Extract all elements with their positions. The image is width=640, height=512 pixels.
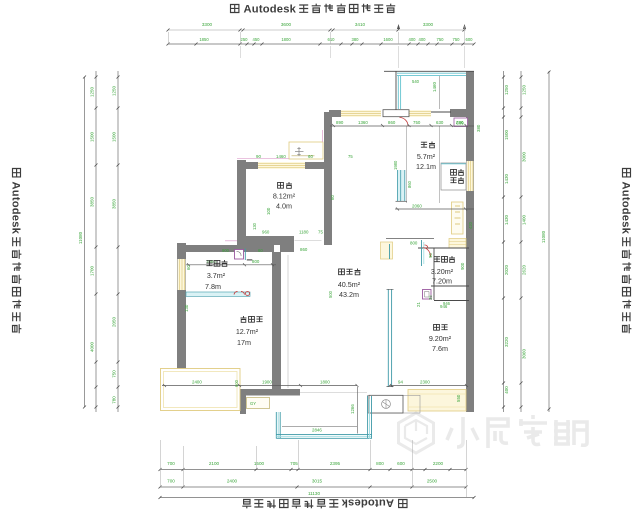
svg-text:860: 860	[407, 180, 412, 188]
svg-text:2500: 2500	[427, 479, 438, 484]
svg-text:780: 780	[112, 396, 117, 404]
svg-text:1266: 1266	[350, 404, 355, 414]
svg-text:94: 94	[398, 380, 403, 385]
svg-text:600: 600	[397, 461, 405, 466]
svg-text:1250: 1250	[112, 85, 117, 96]
svg-text:GY: GY	[250, 401, 256, 406]
svg-text:8.12m²: 8.12m²	[273, 192, 296, 201]
svg-text:3000: 3000	[522, 151, 527, 162]
svg-text:100: 100	[266, 207, 271, 215]
svg-text:860: 860	[300, 247, 308, 252]
svg-text:2300: 2300	[420, 380, 430, 385]
svg-text:380: 380	[476, 124, 481, 132]
svg-text:420: 420	[468, 221, 473, 229]
svg-text:2100: 2100	[209, 461, 220, 466]
svg-text:60: 60	[308, 154, 313, 159]
svg-text:1250: 1250	[522, 84, 527, 95]
svg-text:11080: 11080	[78, 231, 83, 244]
svg-text:1700: 1700	[90, 265, 95, 276]
svg-text:4.0m: 4.0m	[276, 202, 292, 211]
svg-text:3850: 3850	[90, 196, 95, 207]
svg-text:40.5m²: 40.5m²	[338, 280, 361, 289]
svg-text:9.20m²: 9.20m²	[429, 334, 452, 343]
svg-text:1460: 1460	[432, 81, 437, 92]
svg-text:75: 75	[348, 154, 353, 159]
svg-text:2200: 2200	[433, 461, 444, 466]
svg-text:1600: 1600	[383, 37, 393, 42]
svg-text:3410: 3410	[355, 22, 366, 27]
svg-text:1900: 1900	[262, 380, 272, 385]
svg-text:380: 380	[352, 37, 360, 42]
svg-text:1500: 1500	[112, 131, 117, 142]
svg-text:750: 750	[112, 370, 117, 378]
svg-text:3.7m²: 3.7m²	[207, 271, 226, 280]
svg-text:3015: 3015	[312, 479, 323, 484]
svg-text:17m: 17m	[237, 338, 251, 347]
svg-text:800: 800	[376, 461, 384, 466]
svg-text:1180: 1180	[299, 230, 309, 235]
svg-text:3220: 3220	[504, 336, 509, 347]
svg-text:7.20m: 7.20m	[432, 277, 452, 286]
svg-text:2050: 2050	[112, 316, 117, 327]
svg-text:1430: 1430	[504, 173, 509, 184]
svg-text:11130: 11130	[308, 491, 321, 496]
svg-text:1400: 1400	[522, 214, 527, 225]
svg-text:700: 700	[167, 461, 175, 466]
svg-text:4000: 4000	[90, 341, 95, 352]
svg-text:1360: 1360	[358, 120, 368, 125]
svg-text:11080: 11080	[541, 230, 546, 243]
svg-text:2846: 2846	[312, 428, 322, 433]
svg-text:1460: 1460	[276, 154, 286, 159]
svg-text:860: 860	[388, 120, 396, 125]
svg-text:900: 900	[222, 248, 230, 253]
svg-text:21: 21	[416, 302, 421, 307]
svg-text:1500: 1500	[90, 131, 95, 142]
svg-text:1500: 1500	[504, 129, 509, 140]
svg-text:60: 60	[258, 248, 263, 253]
svg-text:400: 400	[409, 37, 417, 42]
svg-text:2400: 2400	[192, 380, 202, 385]
svg-text:75: 75	[318, 230, 323, 235]
svg-text:3600: 3600	[281, 22, 292, 27]
svg-text:550: 550	[456, 394, 461, 402]
svg-text:500: 500	[328, 290, 333, 298]
svg-text:3300: 3300	[202, 22, 213, 27]
svg-text:1800: 1800	[320, 380, 330, 385]
svg-text:43.2m: 43.2m	[339, 290, 359, 299]
svg-text:1250: 1250	[504, 84, 509, 95]
svg-text:800: 800	[410, 241, 418, 246]
svg-text:3060: 3060	[522, 348, 527, 359]
svg-text:12.1m: 12.1m	[416, 162, 436, 171]
svg-text:7.6m: 7.6m	[432, 344, 448, 353]
svg-text:90: 90	[428, 253, 433, 258]
svg-text:2395: 2395	[330, 461, 341, 466]
svg-text:1500: 1500	[254, 461, 265, 466]
svg-text:900: 900	[460, 262, 465, 270]
svg-text:750: 750	[437, 37, 445, 42]
svg-text:750: 750	[413, 120, 421, 125]
svg-text:60: 60	[330, 195, 335, 200]
svg-text:2400: 2400	[227, 479, 238, 484]
svg-text:960: 960	[262, 230, 270, 235]
svg-text:2060: 2060	[412, 204, 422, 209]
svg-text:705: 705	[290, 461, 298, 466]
svg-text:1980: 1980	[393, 160, 398, 170]
svg-text:280: 280	[456, 120, 464, 125]
svg-text:600: 600	[234, 379, 239, 387]
svg-text:946: 946	[443, 301, 451, 306]
svg-text:890: 890	[336, 120, 344, 125]
svg-text:400: 400	[419, 37, 427, 42]
svg-text:90: 90	[256, 154, 261, 159]
svg-text:7.8m: 7.8m	[205, 282, 221, 291]
svg-text:450: 450	[253, 37, 261, 42]
svg-text:700: 700	[167, 479, 175, 484]
svg-text:5.7m²: 5.7m²	[417, 152, 436, 161]
svg-text:130: 130	[184, 304, 189, 312]
svg-text:1850: 1850	[199, 37, 209, 42]
svg-text:130: 130	[252, 222, 257, 230]
svg-text:750: 750	[453, 37, 461, 42]
svg-text:35: 35	[428, 295, 433, 300]
svg-text:400: 400	[504, 386, 509, 394]
svg-text:600: 600	[466, 37, 474, 42]
svg-text:3850: 3850	[112, 198, 117, 209]
svg-text:630: 630	[436, 120, 444, 125]
svg-text:540: 540	[412, 79, 420, 84]
svg-text:800: 800	[252, 259, 260, 264]
svg-text:250: 250	[241, 37, 249, 42]
svg-text:60: 60	[186, 265, 191, 270]
svg-text:1250: 1250	[90, 86, 95, 97]
svg-text:3300: 3300	[423, 22, 434, 27]
svg-text:1800: 1800	[281, 37, 291, 42]
svg-text:1430: 1430	[504, 214, 509, 225]
svg-text:12.7m²: 12.7m²	[236, 327, 259, 336]
svg-text:2620: 2620	[522, 264, 527, 275]
svg-text:3.20m²: 3.20m²	[431, 267, 454, 276]
svg-text:610: 610	[328, 37, 336, 42]
svg-text:2020: 2020	[504, 264, 509, 275]
